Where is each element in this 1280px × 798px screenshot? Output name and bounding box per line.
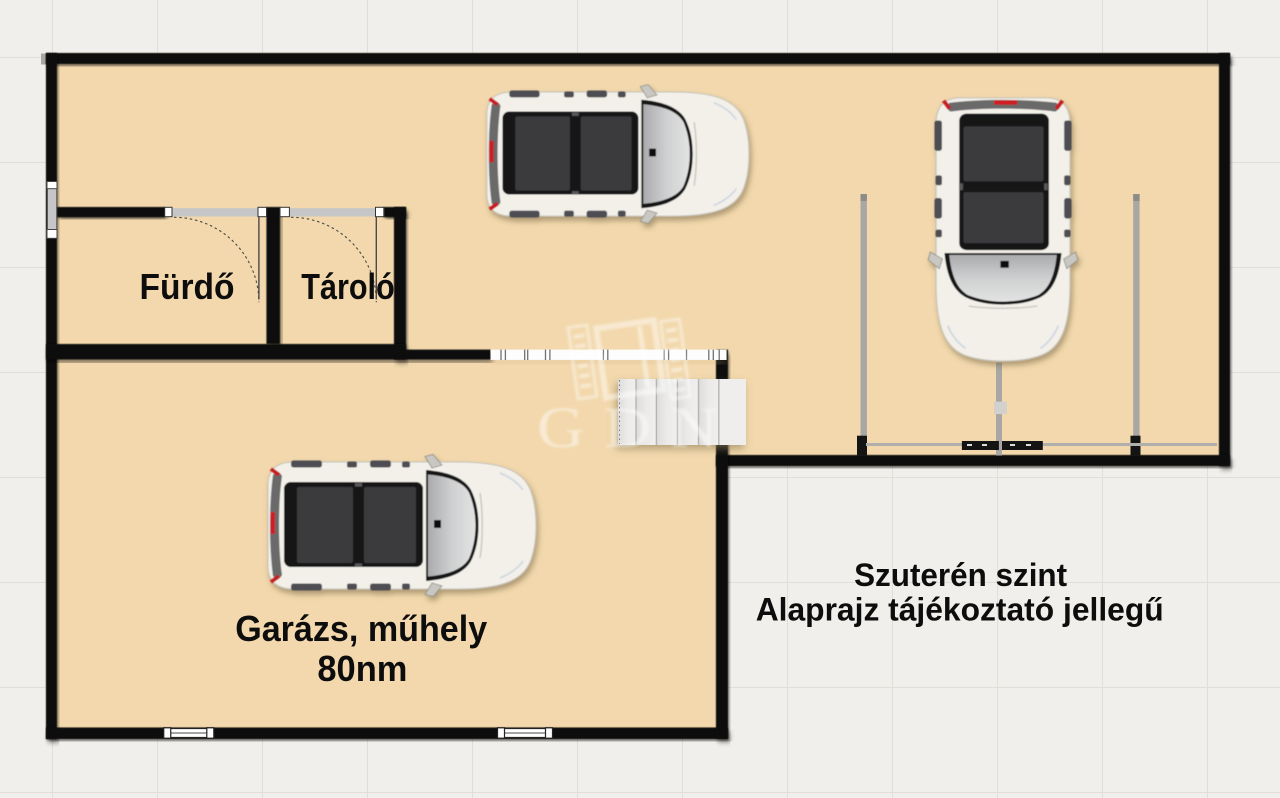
svg-text:80nm: 80nm	[317, 648, 407, 689]
svg-text:Garázs, műhely: Garázs, műhely	[235, 608, 487, 649]
svg-text:Tároló: Tároló	[301, 266, 395, 307]
svg-text:GDN: GDN	[537, 395, 737, 460]
svg-text:Szuterén szint: Szuterén szint	[854, 557, 1067, 593]
svg-text:Alaprajz tájékoztató jellegű: Alaprajz tájékoztató jellegű	[756, 592, 1164, 628]
svg-text:Fürdő: Fürdő	[140, 266, 235, 307]
